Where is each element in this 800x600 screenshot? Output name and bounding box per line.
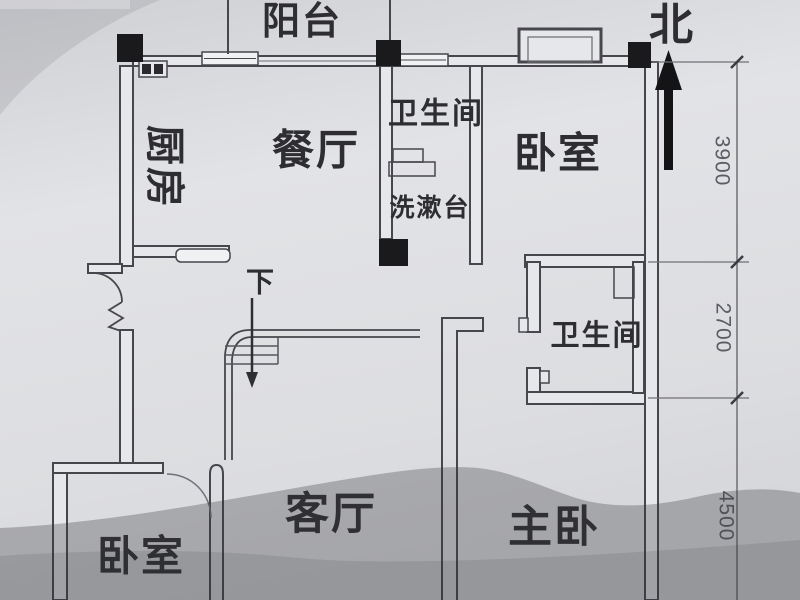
label-bedroom-right: 卧室 bbox=[514, 130, 602, 177]
label-balcony: 阳台 bbox=[262, 1, 342, 43]
label-dining-room: 餐厅 bbox=[272, 127, 360, 174]
dimension-value-3900: 3900 bbox=[711, 136, 734, 187]
wall-bathroomright-left-upper bbox=[527, 262, 540, 332]
north-arrow-shaft bbox=[664, 88, 673, 170]
label-bathroom-right: 卫生间 bbox=[550, 319, 643, 352]
bathroomright-door-jamb-upper bbox=[519, 318, 528, 332]
column-mid-center bbox=[379, 239, 408, 266]
kitchen-flue-cell bbox=[154, 64, 163, 74]
column-top-right bbox=[628, 42, 651, 68]
label-stairs-down: 下 bbox=[246, 267, 276, 298]
wall-bathroomtop-right bbox=[470, 66, 482, 264]
label-bathroom-top: 卫生间 bbox=[388, 98, 484, 131]
column-top-center bbox=[376, 40, 401, 66]
wall-left-mid bbox=[120, 330, 133, 463]
wall-kitchen-left bbox=[120, 66, 133, 266]
bathroomright-door-jamb-lower bbox=[540, 371, 549, 383]
wall-bathroomright-bottom bbox=[527, 392, 645, 404]
floor-plan-drawing: 阳台 北 厨房 餐厅 卫生间 洗漱台 卧室 卫生间 下 客厅 主卧 卧室 390… bbox=[0, 0, 800, 600]
wall-entry-stub bbox=[88, 264, 122, 273]
label-kitchen: 厨房 bbox=[142, 125, 186, 209]
kitchen-sliding-door bbox=[176, 249, 230, 262]
dimension-value-2700: 2700 bbox=[712, 303, 735, 354]
wall-bedroomleft-top bbox=[53, 463, 163, 473]
bay-window bbox=[519, 29, 601, 62]
wall-bathroomright-left-lower bbox=[527, 368, 540, 393]
wall-bedroomright-bottom bbox=[525, 255, 648, 267]
label-north: 北 bbox=[649, 1, 695, 50]
floor-plan-photo: 阳台 北 厨房 餐厅 卫生间 洗漱台 卧室 卫生间 下 客厅 主卧 卧室 390… bbox=[0, 0, 800, 600]
kitchen-flue-cell bbox=[142, 64, 151, 74]
label-washstand: 洗漱台 bbox=[389, 193, 470, 222]
column-top-left bbox=[117, 34, 143, 62]
